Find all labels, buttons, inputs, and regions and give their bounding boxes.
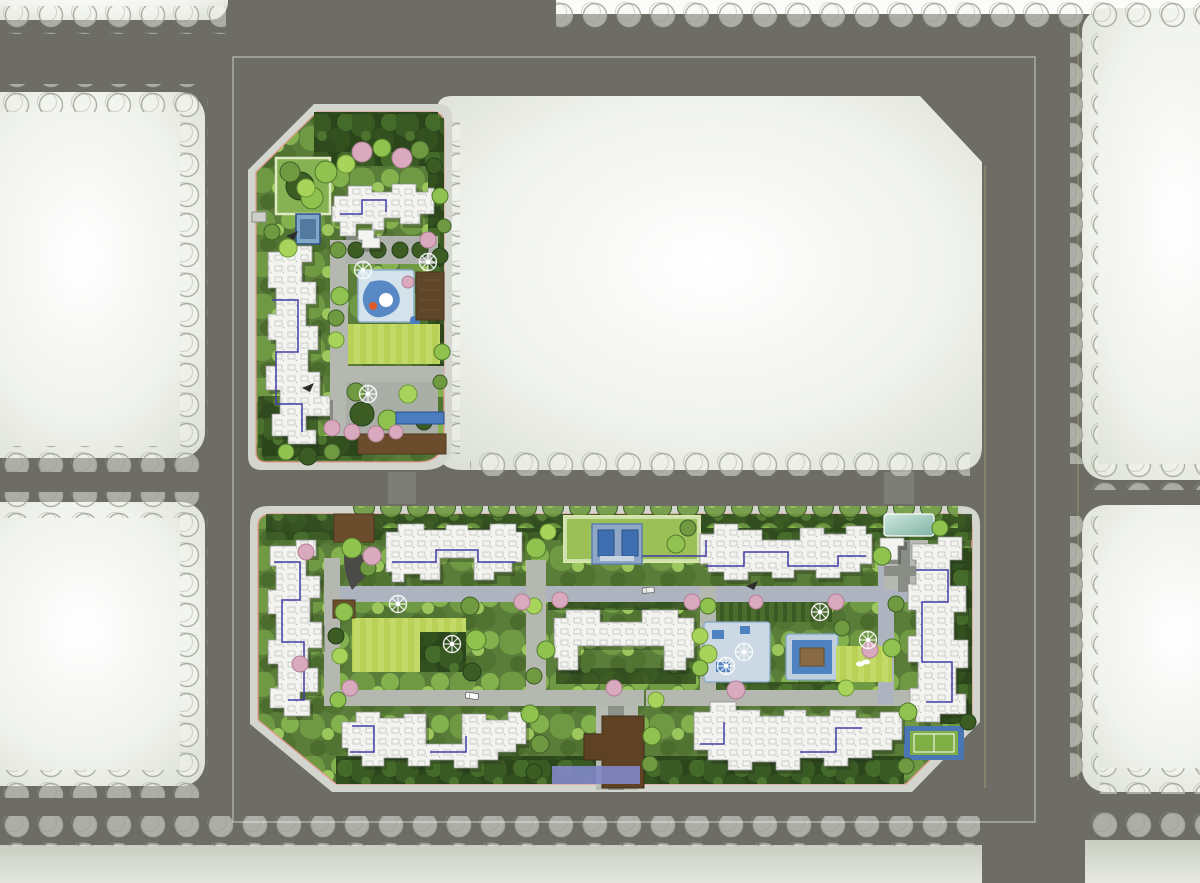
white-feature-tree [811, 603, 829, 621]
block-east-upper [1082, 8, 1200, 480]
block-south-strip [0, 845, 982, 883]
white-feature-tree [389, 595, 407, 613]
white-feature-tree [359, 385, 377, 403]
crosswalk [884, 472, 914, 504]
white-feature-tree [859, 631, 877, 649]
north-parcel [248, 104, 452, 470]
gate-kiosk [252, 212, 266, 222]
block-west-lower [0, 502, 205, 786]
block-center-vacant [437, 96, 982, 470]
white-feature-tree [735, 643, 753, 661]
south-inner-street-south-w [332, 690, 644, 706]
white-feature-tree [354, 261, 372, 279]
north-wood-deck-east [416, 272, 444, 320]
canopy-flat-roof [552, 766, 640, 784]
block-west-upper [0, 92, 205, 458]
sport-court [904, 726, 964, 760]
north-lap-pool [396, 412, 444, 424]
white-feature-tree [717, 657, 735, 675]
white-feature-tree [443, 635, 461, 653]
block-south-east [1085, 840, 1200, 883]
south-parcel [250, 506, 980, 792]
north-small-pool [296, 214, 320, 244]
north-entry-canopy [884, 514, 934, 536]
north-path-horizontal [330, 366, 444, 382]
south-inner-street-south-e [646, 690, 946, 706]
north-lawn [348, 324, 440, 364]
pool-deck [786, 634, 838, 680]
car [642, 587, 654, 594]
crosswalk [388, 472, 416, 504]
site-plan-rendering [0, 0, 1200, 883]
masterplan-canvas [0, 0, 1200, 883]
pool-slide [369, 302, 377, 310]
block-east-lower [1082, 505, 1200, 792]
white-feature-tree [419, 253, 437, 271]
